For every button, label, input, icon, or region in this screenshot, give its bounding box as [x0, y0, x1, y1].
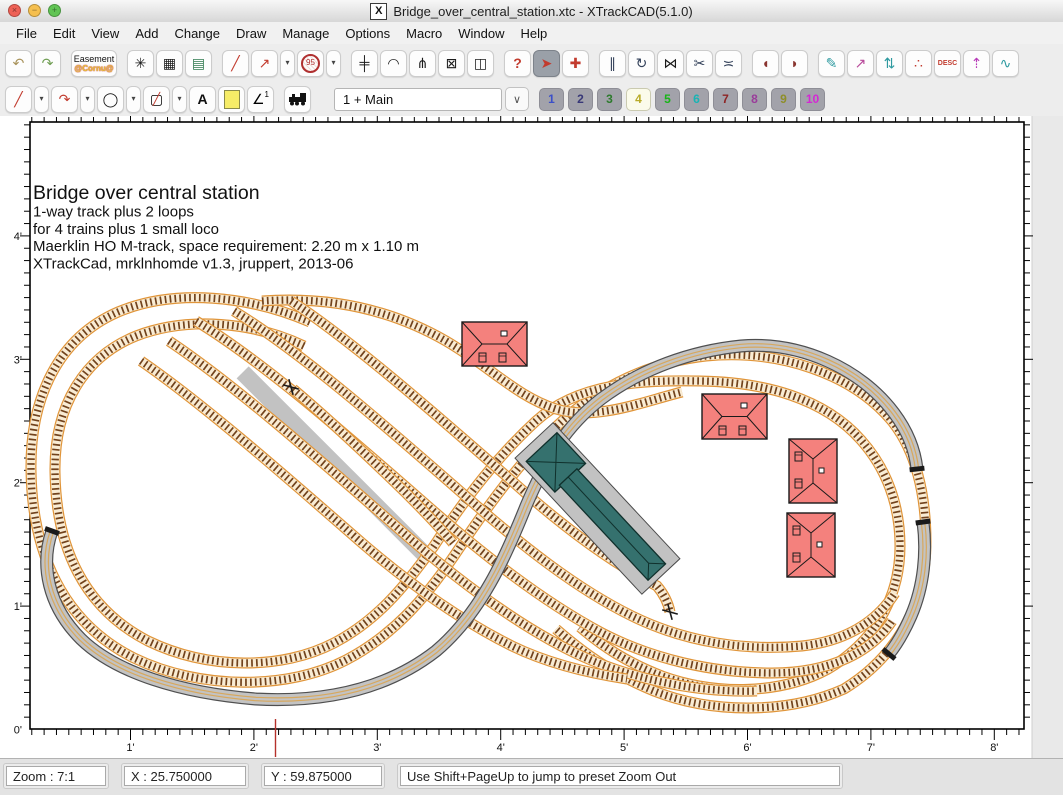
ruler-icon[interactable]: ╱: [222, 50, 249, 77]
train-tool-icon[interactable]: [284, 86, 311, 113]
menu-change[interactable]: Change: [166, 26, 228, 41]
status-message: Use Shift+PageUp to jump to preset Zoom …: [400, 766, 840, 786]
description-button[interactable]: DESC: [934, 50, 961, 77]
circle-radius-button[interactable]: 95: [297, 50, 324, 77]
menu-options[interactable]: Options: [337, 26, 398, 41]
join-icon[interactable]: ≍: [715, 50, 742, 77]
select-icon: ➤: [541, 56, 553, 70]
line-options-dropdown[interactable]: ▾: [34, 86, 49, 113]
layer-button-10[interactable]: 10: [800, 88, 825, 111]
snap-grid-icon: ✳: [135, 56, 147, 70]
window-title: Bridge_over_central_station.xtc - XTrack…: [393, 4, 692, 19]
dimension-number: 1: [265, 91, 269, 99]
draw-curve-icon: ↷: [59, 92, 71, 106]
menu-edit[interactable]: Edit: [45, 26, 83, 41]
house-3[interactable]: [789, 439, 837, 503]
layer-button-3[interactable]: 3: [597, 88, 622, 111]
locomotive-icon: [288, 92, 308, 106]
select-icon[interactable]: ➤: [533, 50, 560, 77]
left-ruler-label: 1': [14, 601, 22, 613]
layout-subtitle[interactable]: Maerklin HO M-track, space requirement: …: [33, 238, 419, 255]
layer-button-5[interactable]: 5: [655, 88, 680, 111]
zoom-status-panel: Zoom : 7:1: [3, 763, 109, 789]
draw-circle-icon[interactable]: ◯: [97, 86, 124, 113]
describe-icon: ?: [513, 56, 522, 70]
layout-subtitle[interactable]: 1-way track plus 2 loops: [33, 204, 194, 221]
straight-track-icon: ╪: [360, 56, 370, 70]
scatter-icon[interactable]: ∴: [905, 50, 932, 77]
menu-file[interactable]: File: [8, 26, 45, 41]
describe-icon[interactable]: ?: [504, 50, 531, 77]
grid-icon: ▦: [163, 56, 176, 70]
titlebar: ×−+ X Bridge_over_central_station.xtc - …: [0, 0, 1063, 23]
canvas-area: 1'2'3'4'5'6'7'8'4'3'2'1'0'Bridge over ce…: [0, 116, 1063, 758]
zoom-status: Zoom : 7:1: [6, 766, 106, 786]
easement-sublabel: @Cornu@: [74, 64, 113, 73]
left-ruler-label: 3': [14, 354, 22, 366]
chevron-down-icon: ▾: [85, 95, 89, 103]
box-track-icon: ⊠: [446, 56, 458, 70]
easement-button[interactable]: Easement@Cornu@: [71, 50, 117, 77]
curve-options-dropdown[interactable]: ▾: [80, 86, 95, 113]
redo-icon: ↷: [42, 56, 54, 70]
measure-icon: ↗: [259, 56, 271, 70]
note-icon: [224, 90, 240, 109]
draw-line-icon: ╱: [14, 92, 22, 106]
description-icon: DESC: [938, 60, 957, 67]
scatter-icon: ∴: [914, 56, 923, 70]
flip-icon: ⋈: [664, 56, 678, 70]
right-margin: [1032, 116, 1063, 758]
bottom-ruler-label: 5': [620, 742, 628, 754]
turnout-icon: ⋔: [417, 56, 429, 70]
bottom-ruler-label: 8': [990, 742, 998, 754]
profile-arrow-icon[interactable]: ⇡: [963, 50, 990, 77]
undo-icon: ↶: [13, 56, 25, 70]
layout-title[interactable]: Bridge over central station: [33, 182, 260, 204]
track-end-cap: [910, 468, 925, 470]
rotate-icon: ↻: [636, 56, 648, 70]
circle-draw-dropdown[interactable]: ▾: [126, 86, 141, 113]
grid-icon[interactable]: ▦: [156, 50, 183, 77]
bottom-ruler-label: 3': [373, 742, 381, 754]
statusbar: Zoom : 7:1 X : 25.750000 Y : 59.875000 U…: [0, 758, 1063, 795]
layout-subtitle[interactable]: XTrackCad, mrklnhomde v1.3, jruppert, 20…: [33, 255, 353, 272]
text-tool-icon: A: [197, 92, 207, 106]
draw-toolbar: ╱▾↷▾◯▾▢╱▾A∠11 + Main∨12345678910: [0, 82, 1063, 117]
elevation-icon[interactable]: ⇅: [876, 50, 903, 77]
x-status-panel: X : 25.750000: [121, 763, 249, 789]
profile-icon: ∿: [1000, 56, 1012, 70]
layer-selector[interactable]: 1 + Main: [334, 88, 502, 111]
track-cascade-icon: ◠: [387, 56, 399, 70]
ruler-options-dropdown[interactable]: ▾: [280, 50, 295, 77]
chevron-down-icon: ▾: [131, 95, 135, 103]
profile-arrow-icon: ⇡: [971, 56, 983, 70]
xtrackcad-window: ×−+ X Bridge_over_central_station.xtc - …: [0, 0, 1063, 795]
layout-subtitle[interactable]: for 4 trains plus 1 small loco: [33, 221, 219, 238]
angle-icon: ∠: [252, 92, 265, 106]
layer-button-2[interactable]: 2: [568, 88, 593, 111]
move-icon[interactable]: ✚: [562, 50, 589, 77]
x-coordinate: X : 25.750000: [124, 766, 246, 786]
box-icon: ▢: [150, 92, 163, 106]
chevron-down-icon: ▾: [331, 59, 335, 67]
signal-icon[interactable]: ◫: [467, 50, 494, 77]
menubar: FileEditViewAddChangeDrawManageOptionsMa…: [0, 22, 1063, 45]
house-2[interactable]: [702, 394, 767, 439]
link-icon[interactable]: ↗: [847, 50, 874, 77]
layer-button-9[interactable]: 9: [771, 88, 796, 111]
undo-icon[interactable]: ↶: [5, 50, 32, 77]
bottom-ruler-label: 7': [867, 742, 875, 754]
left-ruler-label: 4': [14, 231, 22, 243]
track-cascade-icon[interactable]: ◠: [380, 50, 407, 77]
bottom-ruler-label: 4': [497, 742, 505, 754]
chevron-down-icon: ▾: [285, 59, 289, 67]
easement-label: Easement: [74, 54, 115, 64]
main-toolbar: ↶↷Easement@Cornu@✳▦▤╱↗▾95▾╪◠⋔⊠◫?➤✚∥↻⋈✂≍◖…: [0, 44, 1063, 82]
measure-icon[interactable]: ↗: [251, 50, 278, 77]
menu-draw[interactable]: Draw: [228, 26, 274, 41]
menu-add[interactable]: Add: [127, 26, 166, 41]
bottom-ruler-label: 6': [743, 742, 751, 754]
left-ruler-label: 0': [14, 725, 22, 737]
layer-selector-chevron[interactable]: ∨: [505, 87, 529, 111]
layer-button-4[interactable]: 4: [626, 88, 651, 111]
menu-macro[interactable]: Macro: [398, 26, 450, 41]
split-icon: ✂: [694, 56, 706, 70]
menu-manage[interactable]: Manage: [274, 26, 337, 41]
straight-track-icon[interactable]: ╪: [351, 50, 378, 77]
parallel-track-icon[interactable]: ∥: [599, 50, 626, 77]
turnout-icon[interactable]: ⋔: [409, 50, 436, 77]
layer-button-8[interactable]: 8: [742, 88, 767, 111]
window-title-area: X Bridge_over_central_station.xtc - XTra…: [0, 0, 1063, 22]
split-icon[interactable]: ✂: [686, 50, 713, 77]
layer-button-1[interactable]: 1: [539, 88, 564, 111]
text-tool-icon[interactable]: A: [189, 86, 216, 113]
box-track-icon[interactable]: ⊠: [438, 50, 465, 77]
draw-box-icon[interactable]: ▢╱: [143, 86, 170, 113]
menu-help[interactable]: Help: [513, 26, 556, 41]
parallel-track-icon: ∥: [609, 56, 616, 70]
note-tool-icon[interactable]: [218, 86, 245, 113]
chevron-down-icon: ▾: [177, 95, 181, 103]
ruler-icon: ╱: [231, 56, 239, 70]
snap-grid-icon[interactable]: ✳: [127, 50, 154, 77]
track-end-cap: [916, 521, 931, 523]
connect-track-icon: ✎: [826, 56, 838, 70]
app-icon: X: [370, 3, 387, 20]
y-status-panel: Y : 59.875000: [261, 763, 385, 789]
flip-icon[interactable]: ⋈: [657, 50, 684, 77]
tunnel-icon: ◖: [761, 56, 769, 70]
bottom-ruler-label: 2': [250, 742, 258, 754]
circle-radius-icon: 95: [301, 54, 320, 73]
chevron-down-icon: ▾: [39, 95, 43, 103]
hint-panel: Use Shift+PageUp to jump to preset Zoom …: [397, 763, 843, 789]
house-4[interactable]: [787, 513, 835, 577]
elevation-icon: ⇅: [884, 56, 896, 70]
bottom-ruler-label: 1': [126, 742, 134, 754]
circle-options-dropdown[interactable]: ▾: [326, 50, 341, 77]
bridge-icon: ◗: [790, 56, 798, 70]
draw-curve-icon[interactable]: ↷: [51, 86, 78, 113]
draw-line-icon[interactable]: ╱: [5, 86, 32, 113]
layer-button-6[interactable]: 6: [684, 88, 709, 111]
map-icon[interactable]: ▤: [185, 50, 212, 77]
map-icon: ▤: [192, 56, 205, 70]
box-options-dropdown[interactable]: ▾: [172, 86, 187, 113]
menu-window[interactable]: Window: [450, 26, 512, 41]
left-ruler-label: 2': [14, 478, 22, 490]
layer-button-7[interactable]: 7: [713, 88, 738, 111]
y-coordinate: Y : 59.875000: [264, 766, 382, 786]
link-icon: ↗: [855, 56, 867, 70]
move-icon: ✚: [570, 56, 582, 70]
draw-circle-icon: ◯: [103, 92, 119, 106]
drawing-canvas[interactable]: 1'2'3'4'5'6'7'8'4'3'2'1'0'Bridge over ce…: [0, 116, 1063, 758]
profile-icon[interactable]: ∿: [992, 50, 1019, 77]
redo-icon[interactable]: ↷: [34, 50, 61, 77]
tunnel-icon[interactable]: ◖: [752, 50, 779, 77]
join-icon: ≍: [723, 56, 735, 70]
dimension-icon[interactable]: ∠1: [247, 86, 274, 113]
house-1[interactable]: [462, 322, 527, 366]
bridge-icon[interactable]: ◗: [781, 50, 808, 77]
signal-icon: ◫: [474, 56, 487, 70]
connect-track-icon[interactable]: ✎: [818, 50, 845, 77]
menu-view[interactable]: View: [83, 26, 127, 41]
rotate-icon[interactable]: ↻: [628, 50, 655, 77]
